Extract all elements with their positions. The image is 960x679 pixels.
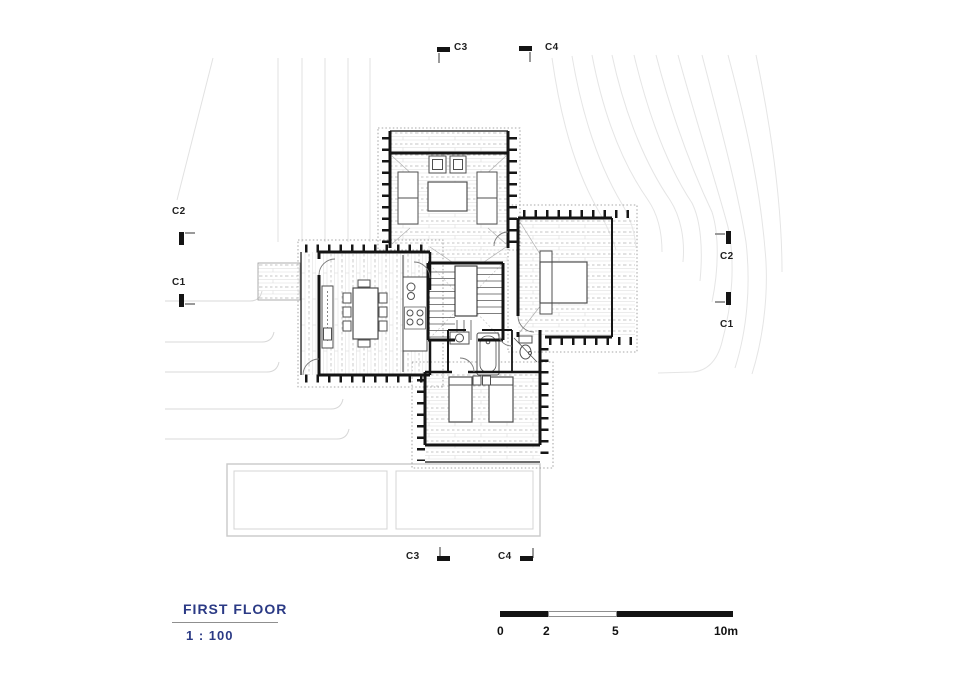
- contour-lines-left: [177, 58, 370, 242]
- drawing-scale: 1 : 100: [186, 628, 233, 643]
- section-cut-tail: [715, 233, 725, 235]
- section-cut-tail: [438, 53, 440, 63]
- section-cut-bar: [437, 556, 450, 561]
- scale-bar: 0 2 5 10m: [500, 611, 750, 643]
- section-cut-bar: [519, 46, 532, 51]
- section-cut-tail: [185, 232, 195, 234]
- scale-bar-segment-5-10: [617, 611, 733, 617]
- section-label: C3: [406, 551, 420, 562]
- scale-bar-segment-0-2: [500, 611, 548, 617]
- floor-plan-drawing: [0, 0, 960, 679]
- section-label: C4: [545, 42, 559, 53]
- title-divider: [172, 622, 278, 623]
- section-cut-bar: [726, 292, 731, 305]
- scale-tick-label: 10m: [714, 624, 738, 638]
- section-cut-tail: [185, 303, 195, 305]
- section-label: C2: [720, 251, 734, 262]
- section-cut-bar: [179, 232, 184, 245]
- section-label: C1: [720, 319, 734, 330]
- scale-tick-label: 0: [497, 624, 504, 638]
- scale-bar-segment-2-5: [548, 611, 617, 617]
- scale-tick-label: 2: [543, 624, 550, 638]
- section-label: C4: [498, 551, 512, 562]
- section-cut-tail: [529, 52, 531, 62]
- drawing-sheet: C2 C1 C2 C1 C3 C4 C3 C4 FIRST FLOOR: [0, 0, 960, 679]
- stairs: [428, 265, 503, 340]
- title-block: FIRST FLOOR 1 : 100: [172, 601, 332, 651]
- scale-tick-label: 5: [612, 624, 619, 638]
- section-cut-bar: [520, 556, 533, 561]
- section-cut-bar: [726, 231, 731, 244]
- page-title: FIRST FLOOR: [183, 601, 287, 617]
- section-label: C2: [172, 206, 186, 217]
- section-cut-bar: [179, 294, 184, 307]
- pool: [227, 464, 540, 536]
- section-cut-bar: [437, 47, 450, 52]
- section-label: C3: [454, 42, 468, 53]
- section-cut-tail: [715, 301, 725, 303]
- section-label: C1: [172, 277, 186, 288]
